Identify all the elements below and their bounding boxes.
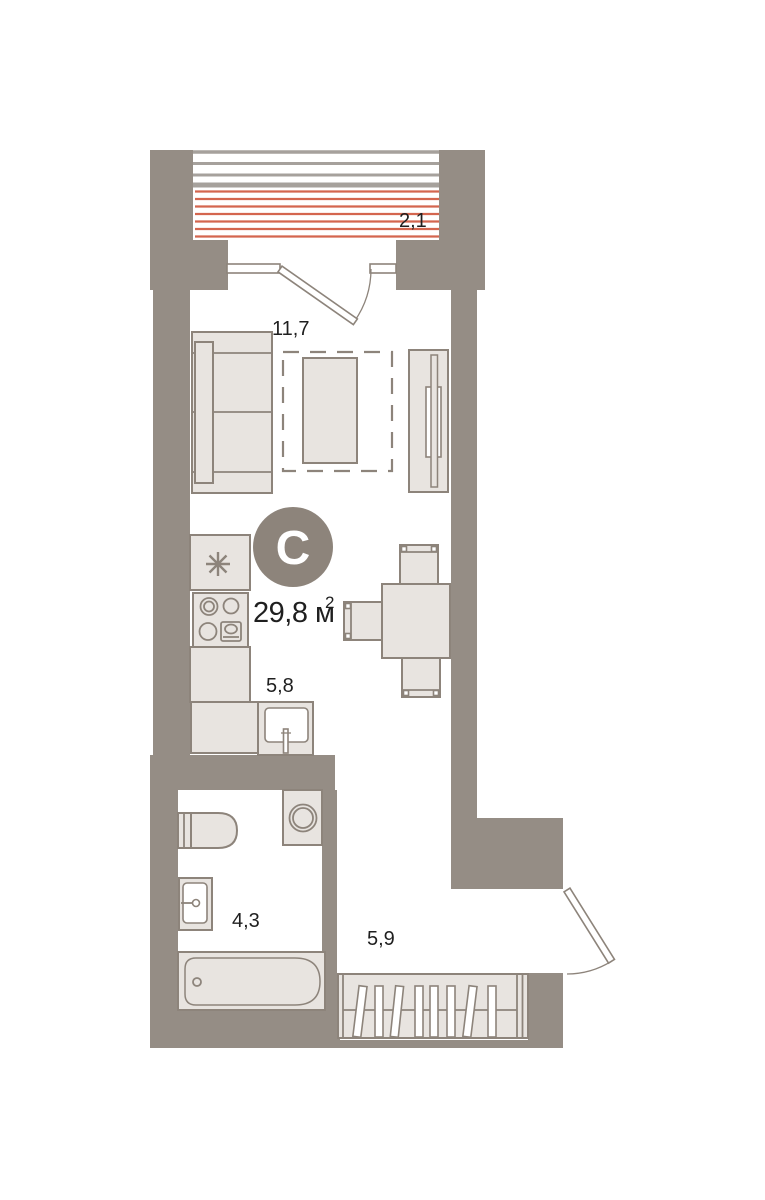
total-area-label: 29,8 м 2 [253,593,334,629]
facade-openings [227,264,396,325]
stove [193,593,248,647]
room-label-hallway: 5,9 [367,928,395,950]
total-area-value: 29,8 м [253,597,334,629]
toilet-bowl [191,813,237,848]
balcony-door [278,266,371,325]
wall-kitchen-bathroom [153,755,335,790]
tv-screen [431,355,438,487]
total-area-superscript: 2 [325,593,334,612]
logo-badge: С [253,507,333,587]
fridge [190,535,250,590]
tv-unit [409,350,448,492]
hanger [375,986,383,1037]
coffee-table [303,358,357,463]
chair-top [400,545,438,584]
window-sill-right [370,264,396,273]
chair-back-knob [432,547,437,552]
dining-set [344,545,450,697]
kitchen-sink-unit [258,702,313,755]
chair-back-knob [346,604,351,609]
entrance-door [564,888,614,974]
washing-machine [283,790,322,845]
floor-plan-page: С 2,1 11,7 5,8 4,3 5,9 29,8 м 2 [0,0,765,1200]
wall-balcony-column-left [150,150,193,240]
toilet [178,813,237,848]
sofa-backrest [195,342,213,483]
hanger [447,986,455,1037]
logo-letter: С [276,522,311,575]
chair-back-knob [404,691,409,696]
living-room-furniture [192,332,448,493]
room-label-bathroom: 4,3 [232,910,260,932]
hallway-furniture [338,888,614,1038]
chair-left [344,602,382,640]
wall-facade-pier-left [150,240,228,290]
wall-bottom-left [150,1010,340,1048]
balcony-door-swing-arc [355,269,372,321]
sofa [192,332,272,493]
hanger [430,986,438,1037]
chair-back-knob [346,634,351,639]
washbasin [179,878,212,930]
room-label-kitchen: 5,8 [266,675,294,697]
dining-table [382,584,450,658]
kitchen-counter-lower [191,702,258,753]
chair-bottom [402,658,440,697]
room-label-balcony: 2,1 [399,210,427,232]
chair-back-knob [402,547,407,552]
entrance-door-leaf [564,888,614,963]
washbasin-faucet-knob [193,900,200,907]
chair-back-knob [434,691,439,696]
bathtub-basin [185,958,320,1005]
hanger [415,986,423,1037]
room-label-living: 11,7 [272,318,309,340]
kitchen-counter-upper [190,647,250,702]
snowflake-icon [206,552,230,576]
wall-entry-right-block [528,973,563,1048]
wall-facade-pier-right [396,240,485,290]
floor-plan: С 2,1 11,7 5,8 4,3 5,9 29,8 м 2 [0,0,765,1200]
wall-entry-block [451,818,563,889]
wardrobe [338,974,528,1038]
wall-bathroom-left [150,755,178,1048]
window-sill-left [227,264,280,273]
bathroom-furniture [178,790,325,1010]
hanger [488,986,496,1037]
wall-balcony-column-right [439,150,485,240]
wall-left-upper [153,288,190,758]
entrance-door-swing-arc [567,961,612,974]
wall-right [451,290,477,820]
bathtub [178,952,325,1010]
balcony-door-leaf [278,266,357,325]
